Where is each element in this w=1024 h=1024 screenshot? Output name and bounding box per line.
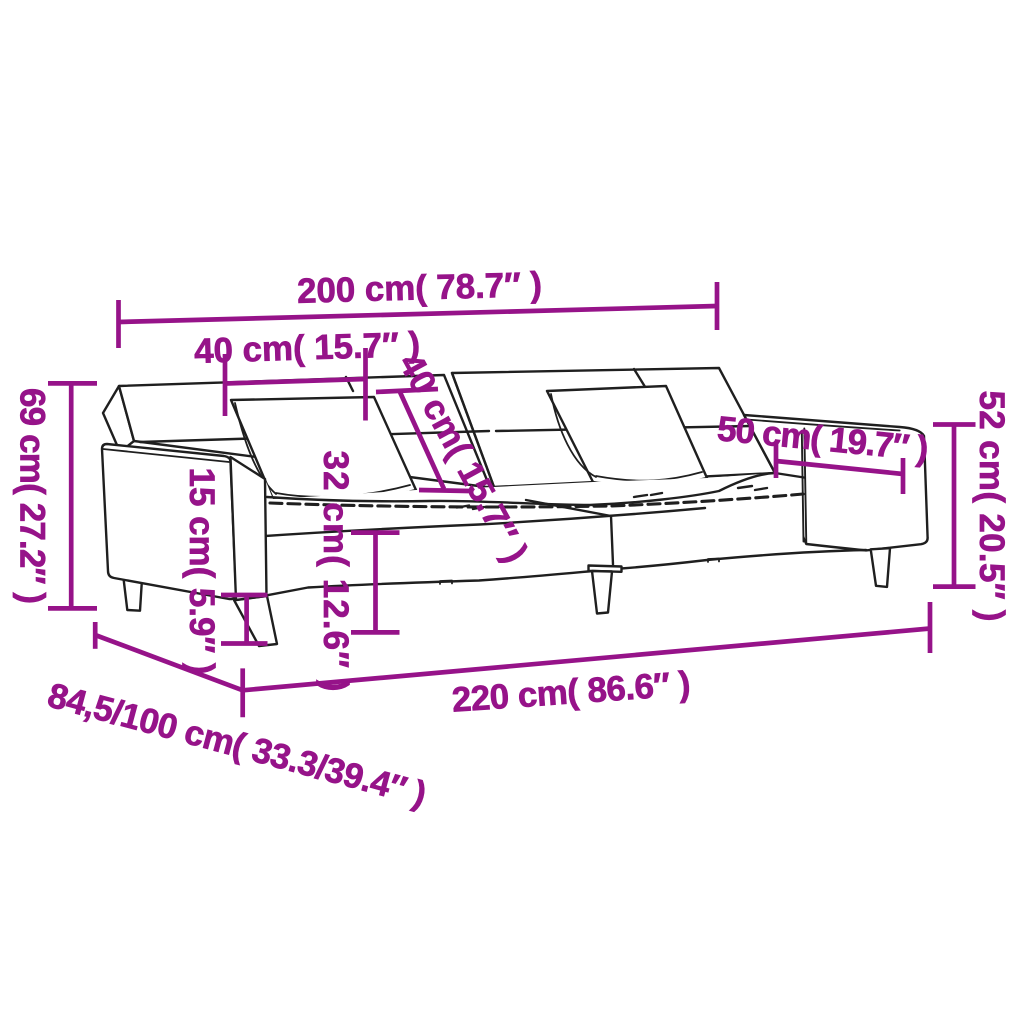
- svg-text:200 cm( 78.7″ ): 200 cm( 78.7″ ): [297, 265, 543, 311]
- svg-text:40 cm( 15.7″ ): 40 cm( 15.7″ ): [193, 325, 420, 371]
- svg-text:69 cm( 27.2″ ): 69 cm( 27.2″ ): [13, 388, 52, 604]
- svg-text:32 cm( 12.6″ ): 32 cm( 12.6″ ): [316, 451, 355, 692]
- svg-text:15 cm( 5.9″ ): 15 cm( 5.9″ ): [182, 468, 221, 675]
- svg-text:52 cm( 20.5″ ): 52 cm( 20.5″ ): [972, 391, 1011, 622]
